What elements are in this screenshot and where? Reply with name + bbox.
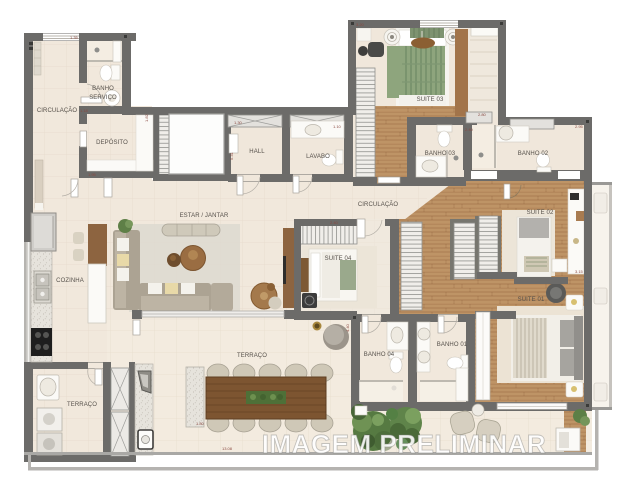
svg-text:BANHO 02: BANHO 02 xyxy=(518,151,549,157)
svg-text:1.30: 1.30 xyxy=(234,120,243,125)
svg-text:2.95: 2.95 xyxy=(575,124,584,129)
svg-text:4.40: 4.40 xyxy=(345,323,350,332)
svg-text:2.80: 2.80 xyxy=(478,112,487,117)
svg-text:5.31: 5.31 xyxy=(229,151,234,160)
svg-text:SUITE 03: SUITE 03 xyxy=(417,97,444,103)
svg-text:13.08: 13.08 xyxy=(222,446,233,451)
svg-text:CIRCULAÇÃO: CIRCULAÇÃO xyxy=(358,201,399,208)
svg-text:SERVIÇO: SERVIÇO xyxy=(89,95,117,101)
svg-text:1.18: 1.18 xyxy=(80,108,89,113)
svg-text:2.40: 2.40 xyxy=(330,220,339,225)
svg-text:COZINHA: COZINHA xyxy=(56,278,84,284)
svg-text:2.40: 2.40 xyxy=(465,127,474,132)
svg-text:1.35: 1.35 xyxy=(70,35,79,40)
svg-text:SUITE 01: SUITE 01 xyxy=(518,297,545,303)
svg-text:TERRAÇO: TERRAÇO xyxy=(237,353,267,359)
svg-text:1.95: 1.95 xyxy=(88,172,97,177)
svg-text:HALL: HALL xyxy=(249,149,265,155)
svg-text:BANHO 03: BANHO 03 xyxy=(425,151,456,157)
svg-text:CIRCULAÇÃO: CIRCULAÇÃO xyxy=(37,107,78,114)
svg-text:IMAGEM PRELIMINAR: IMAGEM PRELIMINAR xyxy=(262,429,546,459)
svg-text:TERRAÇO: TERRAÇO xyxy=(67,402,97,408)
svg-text:1.82: 1.82 xyxy=(144,113,149,122)
svg-text:BANHO 04: BANHO 04 xyxy=(364,352,395,358)
svg-text:3.15: 3.15 xyxy=(575,269,584,274)
svg-text:SUITE 02: SUITE 02 xyxy=(527,210,554,216)
svg-text:ESTAR / JANTAR: ESTAR / JANTAR xyxy=(180,213,229,219)
svg-text:DEPÓSITO: DEPÓSITO xyxy=(96,139,128,146)
svg-text:1.10: 1.10 xyxy=(333,124,342,129)
svg-text:SUITE 04: SUITE 04 xyxy=(325,256,352,262)
svg-text:1.80: 1.80 xyxy=(196,421,205,426)
svg-text:LAVABO: LAVABO xyxy=(306,154,330,160)
svg-text:BANHO: BANHO xyxy=(92,86,114,92)
svg-text:3.20: 3.20 xyxy=(356,22,365,27)
svg-text:BANHO 01: BANHO 01 xyxy=(437,342,468,348)
